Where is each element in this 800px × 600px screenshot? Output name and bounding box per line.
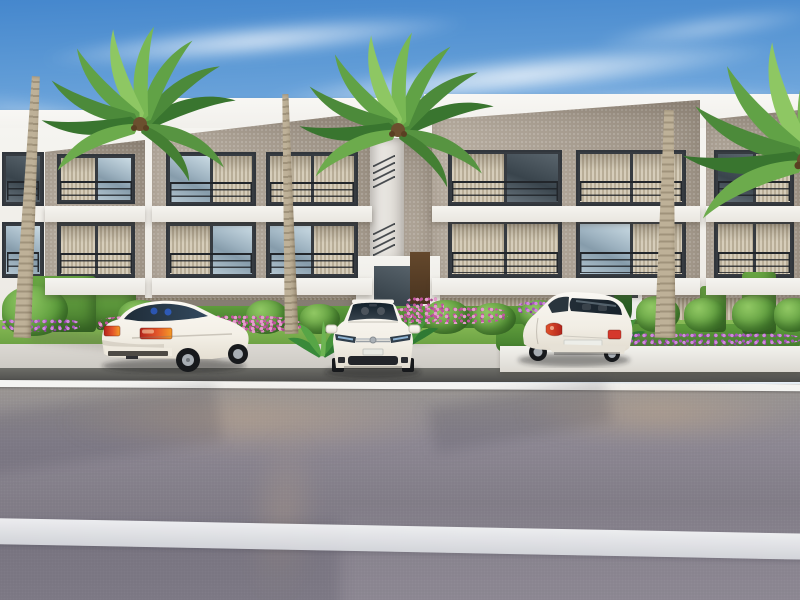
lower-intake <box>348 356 398 365</box>
window <box>448 220 562 278</box>
balcony-railing <box>60 253 131 274</box>
car-white-sedan <box>92 290 254 378</box>
spandrel-band <box>706 278 800 295</box>
fog-slot-left <box>338 357 345 363</box>
exhaust <box>126 356 138 359</box>
front-wheel <box>228 344 248 364</box>
balcony-railing <box>452 181 558 202</box>
fog-slot-right <box>401 357 408 363</box>
balcony-railing <box>60 181 131 200</box>
window <box>57 222 135 278</box>
spandrel-band <box>706 206 800 222</box>
palm-canopy <box>178 0 398 120</box>
bumper-insert <box>108 351 168 356</box>
stair-railing <box>373 223 395 258</box>
license-plate <box>363 349 383 355</box>
window <box>2 152 44 206</box>
balcony-railing <box>270 182 355 202</box>
car-white-hatchback-rear <box>508 284 646 370</box>
palm-canopy <box>0 0 140 114</box>
seat-headrest <box>165 309 172 316</box>
window <box>166 222 256 278</box>
car-white-hatchback-front <box>320 294 426 380</box>
spandrel-band <box>45 206 145 222</box>
stair-railing <box>373 155 395 190</box>
palm-canopy <box>531 0 800 148</box>
side-mirror-left <box>326 325 337 333</box>
seat-headrest <box>582 304 591 310</box>
round-bush <box>774 298 800 332</box>
lip-shadow <box>344 366 402 369</box>
seat-headrest <box>151 308 158 315</box>
car-shadow <box>102 359 246 373</box>
tail-light-right <box>608 330 621 339</box>
window <box>714 220 794 278</box>
spandrel-band <box>152 206 372 222</box>
tail-light-highlight <box>550 326 554 330</box>
balcony-railing <box>170 182 253 202</box>
tail-light-highlight <box>142 330 154 334</box>
brand-badge <box>370 337 376 343</box>
tail-light-left <box>546 323 562 336</box>
side-mirror-right <box>409 325 420 333</box>
window <box>266 152 358 206</box>
balcony-railing <box>452 252 558 273</box>
flower-bed-purple <box>0 318 80 332</box>
rearview-mirror <box>369 304 377 307</box>
balcony-railing <box>170 253 253 274</box>
bumper-lower-trim <box>554 352 620 355</box>
rendering-scene <box>0 0 800 600</box>
rear-wheel <box>176 348 200 372</box>
balcony-railing <box>718 252 791 273</box>
tail-light-left <box>104 326 120 336</box>
seat-headrest <box>598 305 607 311</box>
seat-headrest <box>361 307 369 315</box>
seat-headrest <box>377 307 385 315</box>
